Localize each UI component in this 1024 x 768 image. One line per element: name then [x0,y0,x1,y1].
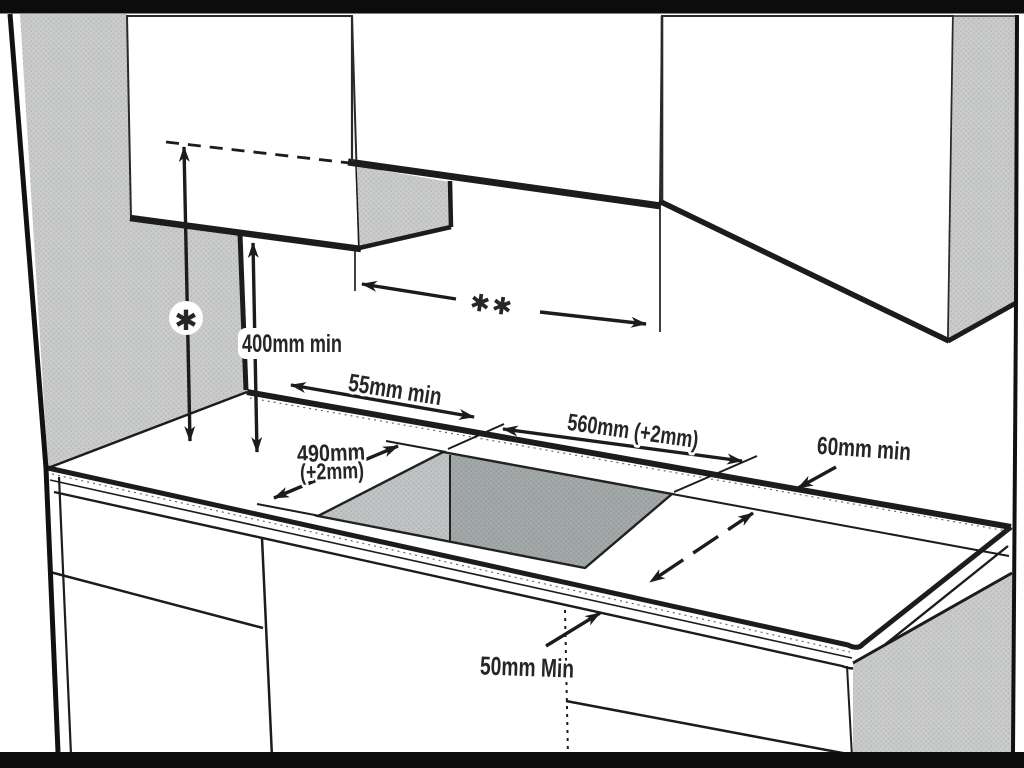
frame-bar-top [0,0,1024,14]
dim-50mm-label: 50mm Min [480,650,575,683]
recess-right-edge [450,181,451,227]
hood-height-note: ✱ [174,304,197,337]
dim-400mm-label: 400mm min [242,330,342,358]
upper-cabinet-right-side-panel [948,16,1017,341]
frame-bar-bottom [0,752,1024,768]
upper-cabinet-left [127,16,359,248]
hob-installation-diagram: ✱ ✱✱ 400mm min 55mm min 560mm (+2mm) 490… [0,0,1024,768]
dim-490mm-tolerance-label: (+2mm) [300,457,365,485]
manual-scan-page: ✱ ✱✱ 400mm min 55mm min 560mm (+2mm) 490… [0,0,1024,768]
